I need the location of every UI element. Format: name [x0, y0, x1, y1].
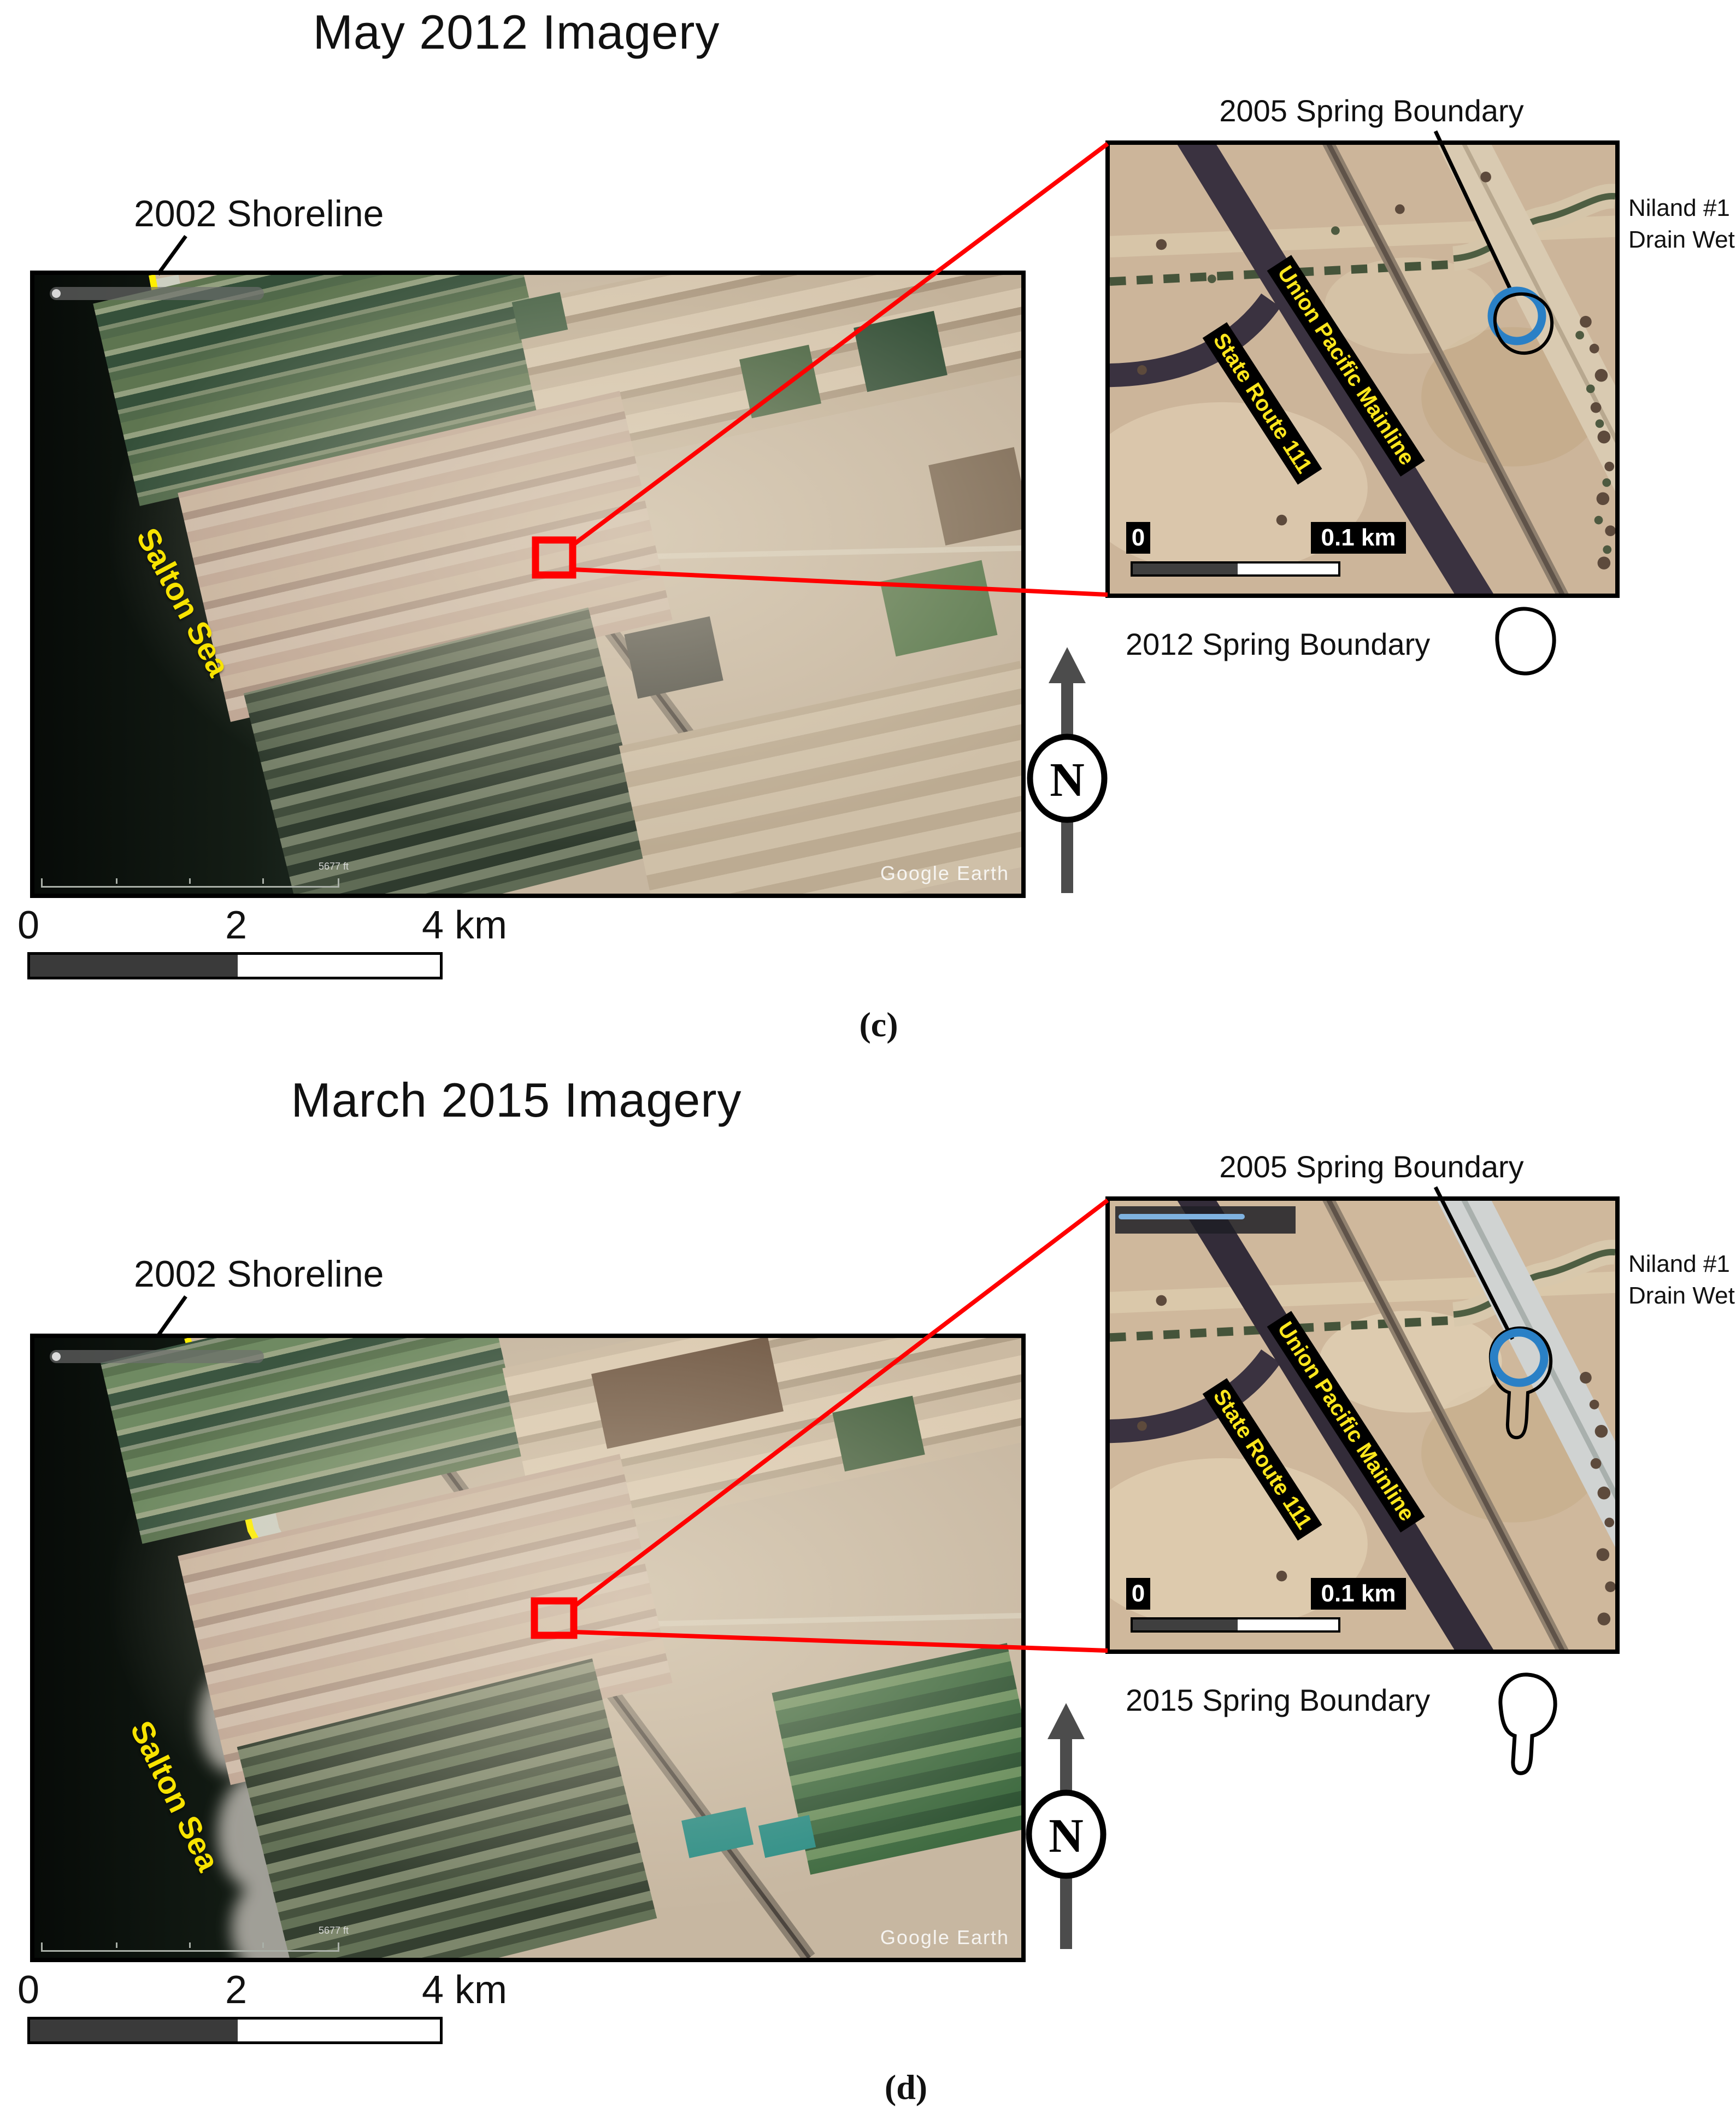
north-circle	[1030, 737, 1104, 820]
panel-c-north-arrow: N	[1030, 647, 1104, 893]
panel-d-watermark: Google Earth	[880, 1926, 1009, 1949]
google-earth-ticks	[41, 878, 339, 888]
tick	[116, 878, 117, 884]
niland-line1: Niland #1	[1628, 192, 1735, 224]
north-arrow-head	[1049, 647, 1086, 683]
panel-c-shoreline-label: 2002 Shoreline	[134, 192, 384, 235]
north-letter: N	[1050, 754, 1085, 807]
niland-line1: Niland #1	[1628, 1248, 1735, 1280]
panel-c-letter: (c)	[835, 1005, 922, 1045]
panel-d-map-imagery: 5677 ft Salton Sea Google Earth	[34, 1338, 1021, 1958]
tick	[116, 1942, 117, 1948]
ge-altitude-text: 5677 ft	[319, 1925, 349, 1936]
panel-c-scale-2: 2	[214, 903, 258, 948]
tick	[189, 878, 191, 884]
panel-c-watermark: Google Earth	[880, 862, 1009, 885]
panel-c-legend-symbol	[1497, 609, 1554, 673]
capsule-dot	[52, 1352, 61, 1361]
panel-d-inset-title: 2005 Spring Boundary	[1147, 1149, 1596, 1184]
imagery-haze	[34, 1338, 1021, 1958]
figure-satellite-comparison: May 2012 Imagery 2002 Shoreline	[0, 0, 1736, 2113]
panel-d-shoreline-leader-line	[158, 1296, 186, 1336]
tick	[262, 1942, 264, 1948]
panel-d-north-arrow: N	[1029, 1703, 1103, 1949]
inset-scale-end: 0.1 km	[1311, 1578, 1406, 1610]
niland-line2: Drain Wet	[1628, 224, 1735, 256]
panel-d-map: 5677 ft Salton Sea Google Earth	[30, 1334, 1026, 1962]
panel-c-scale-0: 0	[7, 903, 50, 948]
panel-c-scale-4km: 4 km	[422, 903, 507, 948]
panel-c-map-imagery: 5677 ft Salton Sea Google Earth	[34, 275, 1021, 894]
inset-scale-0: 0	[1126, 522, 1150, 554]
tick	[189, 1942, 191, 1948]
panel-d-scale-2: 2	[214, 1968, 258, 2012]
google-earth-scalebar	[50, 287, 264, 300]
navbar-slider	[1119, 1214, 1245, 1219]
inset-scale-end: 0.1 km	[1311, 522, 1406, 554]
inset-scale-0: 0	[1126, 1578, 1150, 1610]
panel-c-title: May 2012 Imagery	[189, 4, 844, 60]
panel-c-inset-title: 2005 Spring Boundary	[1147, 93, 1596, 128]
panel-d-inset-map: Union Pacific Mainline State Route 111 0…	[1105, 1196, 1620, 1654]
tick	[262, 878, 264, 884]
panel-d-letter: (d)	[862, 2067, 950, 2108]
panel-c-scalebar	[27, 952, 443, 979]
scalebar-dark-segment	[30, 955, 238, 977]
ge-altitude-text: 5677 ft	[319, 861, 349, 872]
panel-d-scale-0: 0	[7, 1968, 50, 2012]
panel-d-legend-symbol	[1500, 1675, 1555, 1773]
inset-scalebar	[1131, 561, 1340, 577]
panel-d-scalebar	[27, 2017, 443, 2044]
inset-scalebar	[1131, 1617, 1340, 1633]
google-earth-scalebar	[50, 1350, 264, 1363]
capsule-dot	[52, 289, 61, 298]
panel-d-legend-label: 2015 Spring Boundary	[1126, 1682, 1430, 1718]
scalebar-dark-segment	[30, 2020, 238, 2041]
panel-d-scale-4km: 4 km	[422, 1968, 507, 2012]
panel-d-title: March 2015 Imagery	[189, 1072, 844, 1128]
north-arrow-shaft	[1060, 1736, 1072, 1949]
north-circle	[1029, 1793, 1103, 1876]
niland-line2: Drain Wet	[1628, 1280, 1735, 1312]
panel-c-inset-map: Union Pacific Mainline State Route 111 0…	[1105, 140, 1620, 598]
north-letter: N	[1049, 1810, 1084, 1863]
panel-c-shoreline-leader-line	[158, 236, 186, 274]
north-arrow-head	[1048, 1703, 1085, 1739]
panel-d-niland-label: Niland #1 Drain Wet	[1628, 1248, 1735, 1312]
panel-c-map: 5677 ft Salton Sea Google Earth	[30, 271, 1026, 898]
google-earth-ticks	[41, 1942, 339, 1952]
panel-c-legend-label: 2012 Spring Boundary	[1126, 626, 1430, 662]
panel-d-shoreline-label: 2002 Shoreline	[134, 1253, 384, 1295]
panel-c-niland-label: Niland #1 Drain Wet	[1628, 192, 1735, 256]
inset-scalebar-dark	[1133, 1619, 1238, 1630]
inset-scalebar-dark	[1133, 564, 1238, 574]
north-arrow-shaft	[1061, 680, 1073, 893]
google-earth-navbar	[1115, 1206, 1296, 1234]
